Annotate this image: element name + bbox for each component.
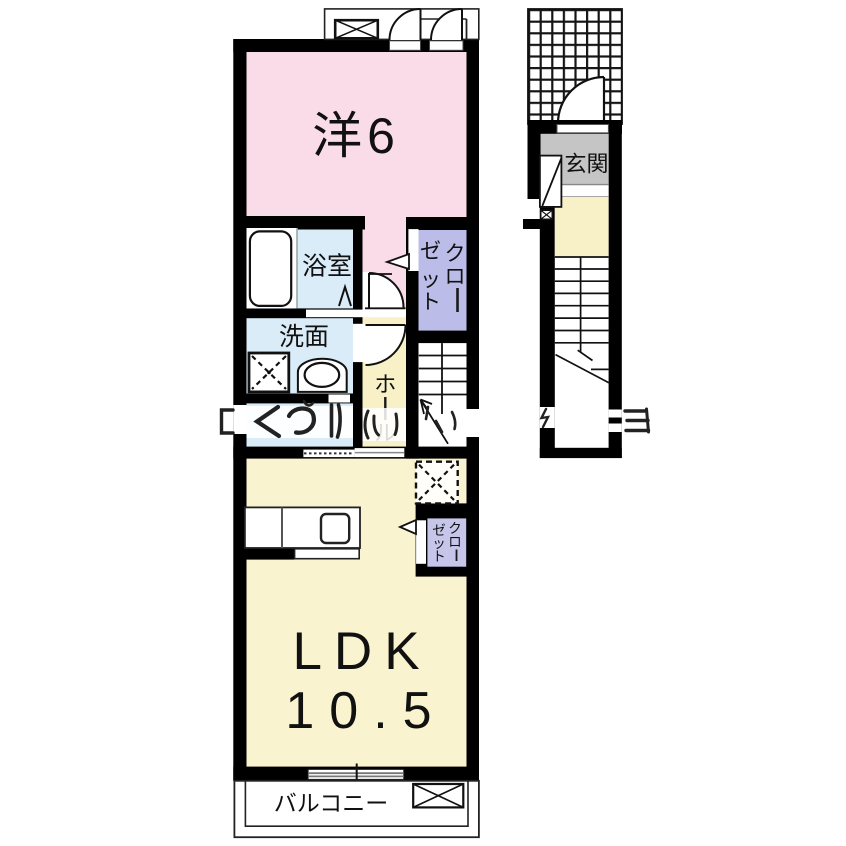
svg-text:玄関: 玄関 bbox=[564, 152, 608, 177]
svg-text:ク: ク bbox=[445, 243, 466, 266]
svg-text:浴室: 浴室 bbox=[302, 253, 352, 281]
svg-text:ホ: ホ bbox=[374, 372, 396, 397]
svg-text:10.5: 10.5 bbox=[285, 682, 446, 740]
svg-text:LDK: LDK bbox=[292, 622, 431, 681]
svg-text:ロ: ロ bbox=[448, 534, 462, 549]
svg-text:ロ: ロ bbox=[445, 266, 466, 289]
svg-text:ト: ト bbox=[432, 549, 446, 564]
svg-text:ッ: ッ bbox=[420, 269, 441, 292]
svg-text:ト: ト bbox=[420, 291, 441, 314]
svg-text:ゼ: ゼ bbox=[420, 240, 441, 263]
svg-text:洋6: 洋6 bbox=[312, 108, 400, 164]
svg-text:バルコニー: バルコニー bbox=[274, 790, 389, 816]
svg-text:洗面: 洗面 bbox=[279, 323, 329, 351]
